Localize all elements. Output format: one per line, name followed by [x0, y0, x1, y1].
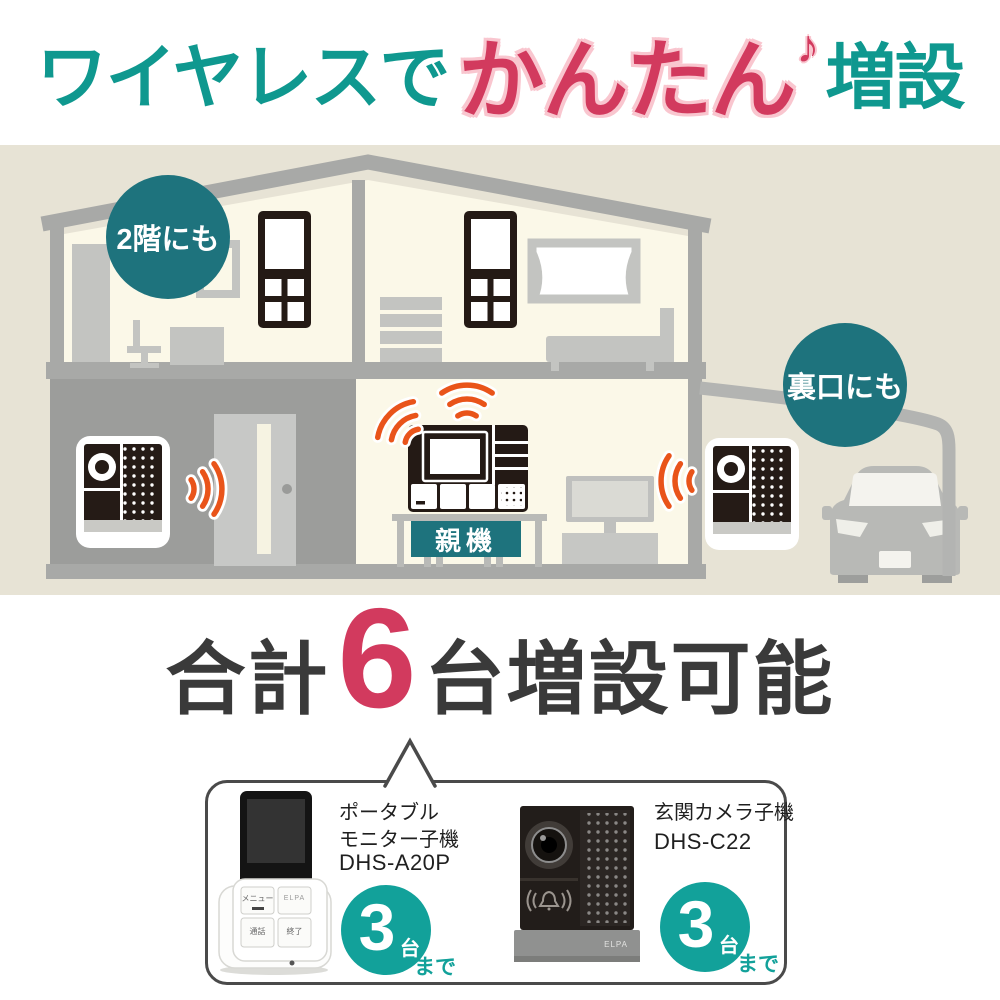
main-unit-label-text: 親機	[435, 521, 497, 558]
wireless-signal-icon	[661, 456, 692, 506]
main-title: ワイヤレスで かんたん ♪ 増設	[0, 14, 1000, 130]
main-unit-screen	[430, 439, 480, 474]
title-part-expand: 増設	[825, 21, 963, 123]
front-door	[214, 414, 296, 566]
handset-end-button-label: 終了	[277, 926, 312, 937]
handset-talk-button-label: 通話	[240, 926, 275, 937]
wireless-signal-icon	[442, 385, 492, 416]
monitor-model: DHS-A20P	[339, 850, 451, 876]
camera-name: 玄関カメラ子機	[654, 800, 794, 827]
headline: 合計 6 台増設可能	[0, 592, 1000, 731]
monitor-name-line1: ポータブル	[339, 800, 459, 827]
back-door-label: 裏口にも	[787, 364, 903, 406]
wireless-signal-icon	[191, 464, 222, 514]
second-floor-label: 2階にも	[116, 216, 219, 258]
camera-count: 3	[678, 886, 715, 962]
monitor-name: ポータブル モニター子機	[339, 800, 459, 854]
back-door-badge: 裏口にも	[783, 323, 907, 447]
title-part-wireless: ワイヤレスで	[37, 21, 449, 123]
camera-count-unit: 台	[719, 929, 739, 958]
tv-icon	[562, 476, 658, 564]
camera-count-suffix: まで	[737, 948, 779, 978]
headline-prefix: 合計	[166, 615, 330, 731]
tall-window-left	[258, 211, 311, 328]
wireless-signal-icon	[372, 396, 429, 453]
car-icon	[822, 466, 968, 583]
infographic: ワイヤレスで かんたん ♪ 増設	[0, 0, 1000, 1000]
headline-suffix: 台増設可能	[424, 615, 834, 731]
speaker-grille	[501, 487, 522, 506]
camera-name-line: 玄関カメラ子機	[654, 800, 794, 827]
handset-brand-label: ELPA	[277, 895, 312, 902]
camera-brand-label: ELPA	[592, 940, 628, 949]
doorbell-camera-back-icon	[705, 438, 799, 550]
camera-model: DHS-C22	[654, 829, 752, 855]
second-floor-badge: 2階にも	[106, 175, 230, 299]
handset-menu-button-label: メニュー	[240, 893, 275, 904]
doorbell-camera-front-icon	[76, 436, 170, 548]
main-unit-label: 親機	[411, 521, 521, 557]
headline-count: 6	[338, 592, 417, 727]
title-part-easy: かんたん	[458, 10, 794, 135]
monitor-count: 3	[359, 889, 396, 965]
tall-window-right	[464, 211, 517, 328]
monitor-count-suffix: まで	[414, 951, 456, 981]
music-note-icon: ♪	[796, 19, 819, 73]
